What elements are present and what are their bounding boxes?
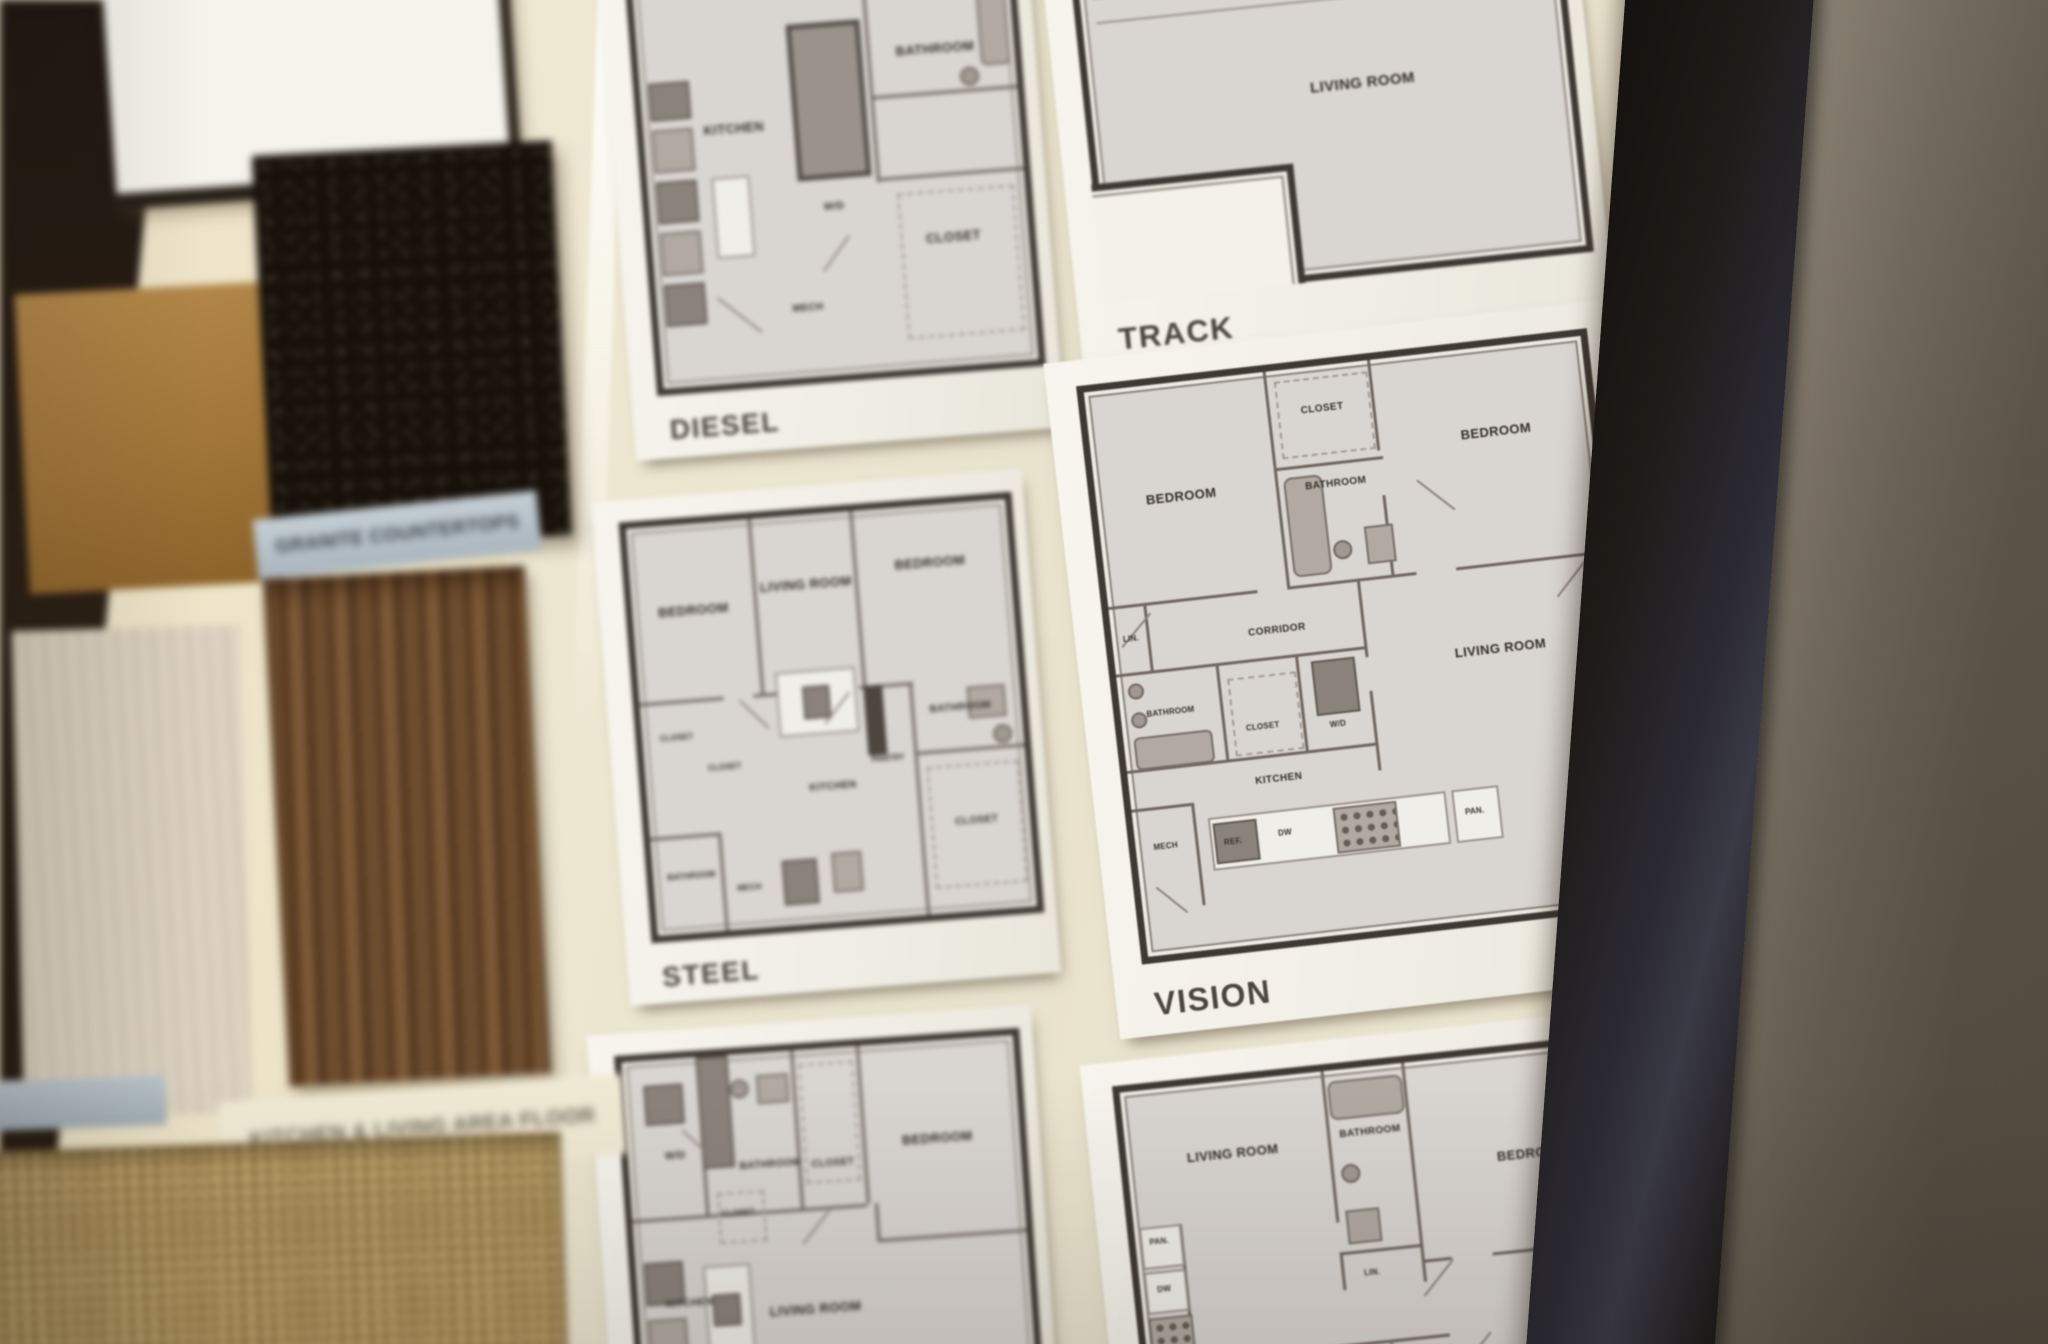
photo-of-floorplan-display: KITCHEN BATHROOM W/D CLOSET MECH DIESEL … bbox=[0, 0, 2048, 1344]
small-label-strip bbox=[0, 1075, 167, 1131]
wood-cabinet-sample bbox=[14, 282, 281, 595]
linen-sample bbox=[12, 625, 253, 1119]
carpet-sample bbox=[0, 1132, 569, 1344]
granite-sample bbox=[252, 140, 572, 550]
wood-floor-sample bbox=[263, 565, 551, 1086]
material-samples-panel: GRANITE COUNTERTOPS KITCHEN & LIVING ARE… bbox=[0, 0, 2048, 1344]
